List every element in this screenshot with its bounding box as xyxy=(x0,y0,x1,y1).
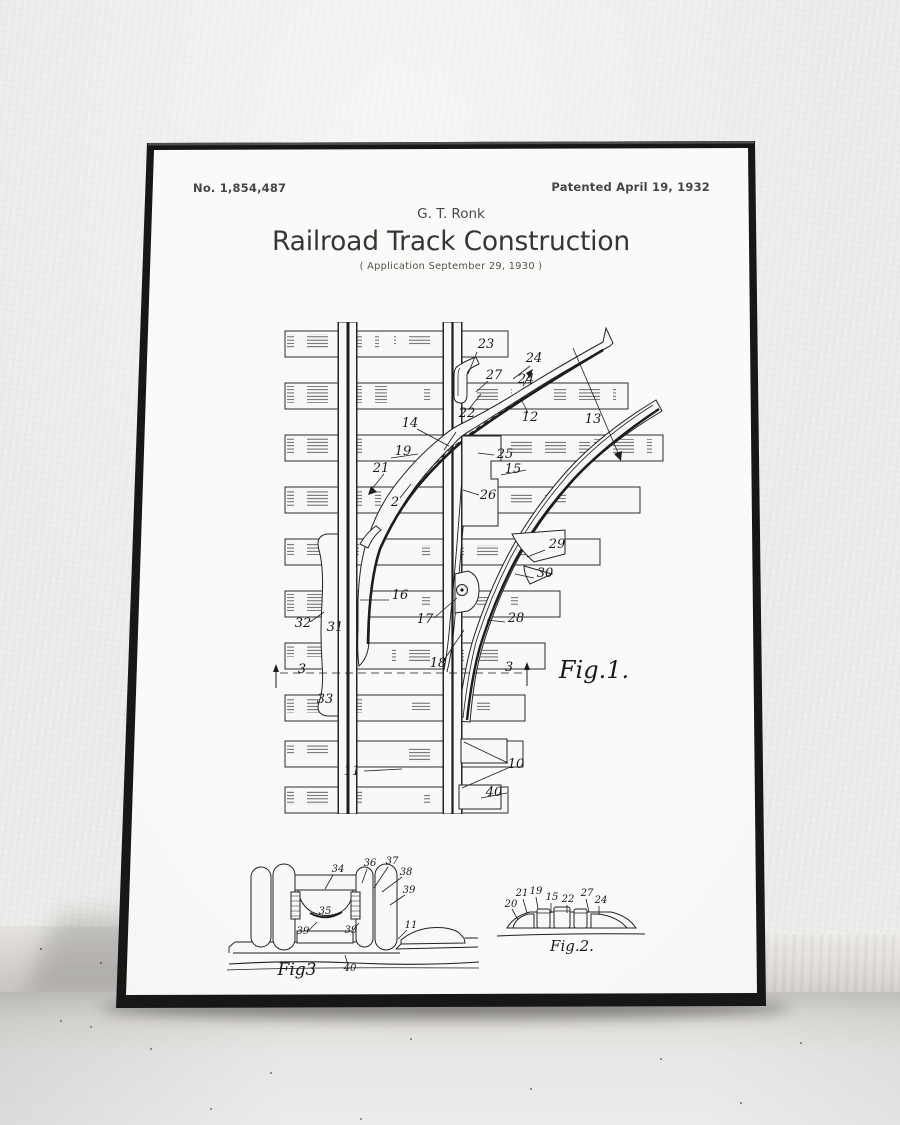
svg-text:39: 39 xyxy=(345,925,358,936)
svg-text:39: 39 xyxy=(403,885,416,896)
svg-text:10: 10 xyxy=(508,757,525,772)
patent-number: No. 1,854,487 xyxy=(193,181,286,195)
svg-text:30: 30 xyxy=(537,566,554,581)
svg-text:Fig.1.: Fig.1. xyxy=(558,656,629,684)
svg-text:22: 22 xyxy=(458,406,476,421)
svg-text:Fig.2.: Fig.2. xyxy=(549,937,594,955)
svg-text:27: 27 xyxy=(485,368,503,383)
svg-text:32: 32 xyxy=(295,616,312,631)
svg-text:17: 17 xyxy=(417,612,434,627)
svg-text:39: 39 xyxy=(297,926,310,937)
svg-text:35: 35 xyxy=(319,906,332,917)
svg-text:3: 3 xyxy=(505,660,513,675)
application-date: ( Application September 29, 1930 ) xyxy=(154,261,748,272)
svg-text:18: 18 xyxy=(430,656,447,671)
svg-text:28: 28 xyxy=(507,611,525,626)
svg-text:Fig3: Fig3 xyxy=(277,960,317,980)
svg-text:3: 3 xyxy=(298,662,306,677)
svg-text:34: 34 xyxy=(332,864,345,875)
svg-text:38: 38 xyxy=(400,867,413,878)
svg-text:13: 13 xyxy=(585,412,602,427)
svg-text:21: 21 xyxy=(515,888,529,899)
svg-text:23: 23 xyxy=(477,337,495,352)
svg-text:19: 19 xyxy=(530,886,543,897)
svg-text:16: 16 xyxy=(392,588,409,603)
svg-text:24: 24 xyxy=(517,372,535,387)
svg-text:33: 33 xyxy=(317,692,334,707)
svg-text:11: 11 xyxy=(405,920,418,931)
scene: No. 1,854,487 Patented April 19, 1932 G.… xyxy=(0,0,900,1125)
figure-2-3-drawing: 34363738393539391140Fig320211915222724Fi… xyxy=(215,843,660,983)
svg-text:36: 36 xyxy=(364,858,377,869)
floor-speckles xyxy=(60,1020,62,1022)
svg-text:24: 24 xyxy=(594,895,608,906)
svg-text:26: 26 xyxy=(479,488,497,503)
svg-text:24: 24 xyxy=(525,351,543,366)
svg-text:11: 11 xyxy=(344,764,361,779)
wall-speckles xyxy=(40,948,42,950)
svg-text:22: 22 xyxy=(561,894,575,905)
svg-text:37: 37 xyxy=(386,856,399,867)
svg-text:27: 27 xyxy=(580,888,594,899)
svg-text:15: 15 xyxy=(546,892,559,903)
svg-text:31: 31 xyxy=(327,620,344,635)
patent-date: Patented April 19, 1932 xyxy=(551,180,710,194)
svg-text:15: 15 xyxy=(505,462,522,477)
svg-text:29: 29 xyxy=(548,537,566,552)
svg-text:40: 40 xyxy=(343,963,357,974)
figure-2-section xyxy=(497,907,645,936)
figure-1-drawing: 2324272422121314192521152622930161728323… xyxy=(272,322,668,814)
svg-text:40: 40 xyxy=(485,785,503,800)
svg-text:14: 14 xyxy=(402,416,419,431)
svg-text:19: 19 xyxy=(395,444,412,459)
svg-text:12: 12 xyxy=(522,410,539,425)
poster-title: Railroad Track Construction xyxy=(154,226,748,257)
svg-text:2: 2 xyxy=(390,495,399,510)
svg-text:21: 21 xyxy=(372,461,390,476)
inventor-name: G. T. Ronk xyxy=(154,206,748,222)
svg-text:20: 20 xyxy=(504,899,518,910)
figure-3-rollers xyxy=(227,864,479,970)
svg-text:25: 25 xyxy=(496,447,514,462)
